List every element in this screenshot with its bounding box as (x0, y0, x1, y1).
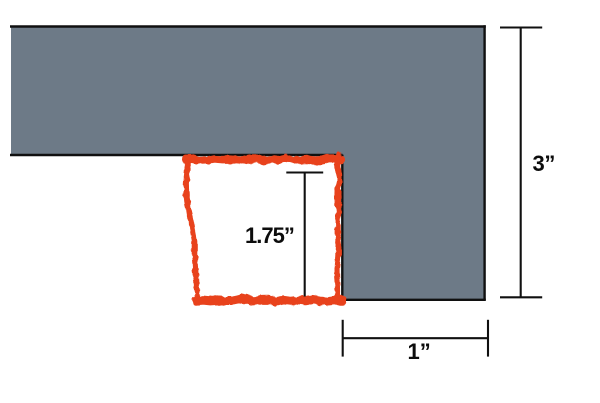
svg-text:1.75”: 1.75” (245, 223, 294, 248)
svg-text:1”: 1” (408, 339, 431, 364)
svg-text:3”: 3” (533, 151, 555, 176)
